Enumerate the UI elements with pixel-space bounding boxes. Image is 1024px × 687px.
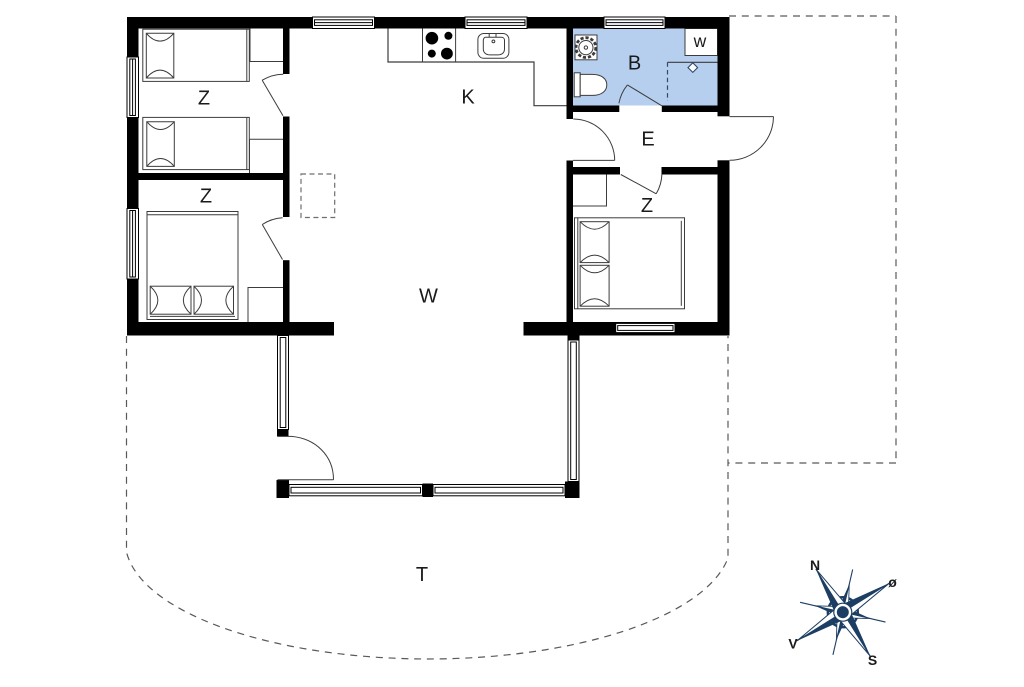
svg-text:ø: ø	[888, 574, 897, 590]
svg-text:K: K	[461, 87, 475, 109]
svg-text:B: B	[628, 53, 641, 75]
svg-text:S: S	[868, 652, 877, 668]
svg-text:Z: Z	[200, 186, 212, 208]
svg-text:W: W	[419, 286, 438, 308]
svg-text:Z: Z	[198, 88, 210, 110]
svg-text:T: T	[416, 564, 428, 586]
svg-text:w: w	[693, 31, 707, 51]
svg-text:E: E	[641, 129, 654, 151]
svg-text:N: N	[810, 557, 820, 573]
svg-text:Z: Z	[641, 195, 653, 217]
svg-text:V: V	[788, 636, 798, 652]
